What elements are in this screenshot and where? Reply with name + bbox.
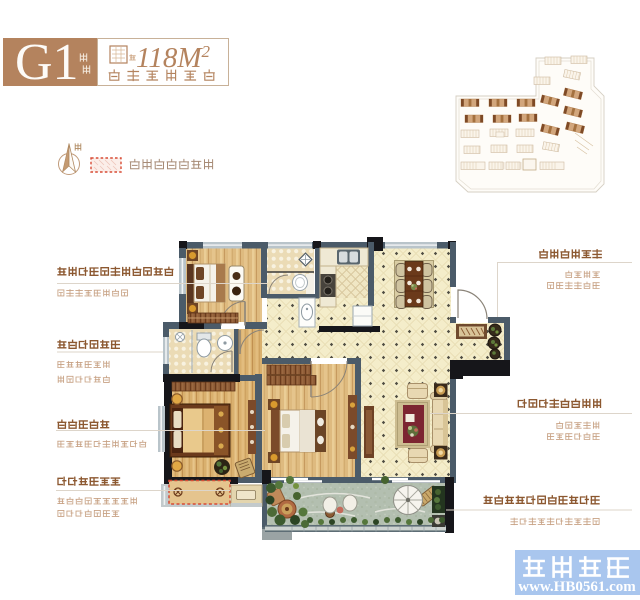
svg-text:www.HB0561.com: www.HB0561.com	[518, 579, 636, 595]
svg-text:G1: G1	[15, 34, 79, 91]
svg-text:118M2: 118M2	[136, 42, 211, 74]
